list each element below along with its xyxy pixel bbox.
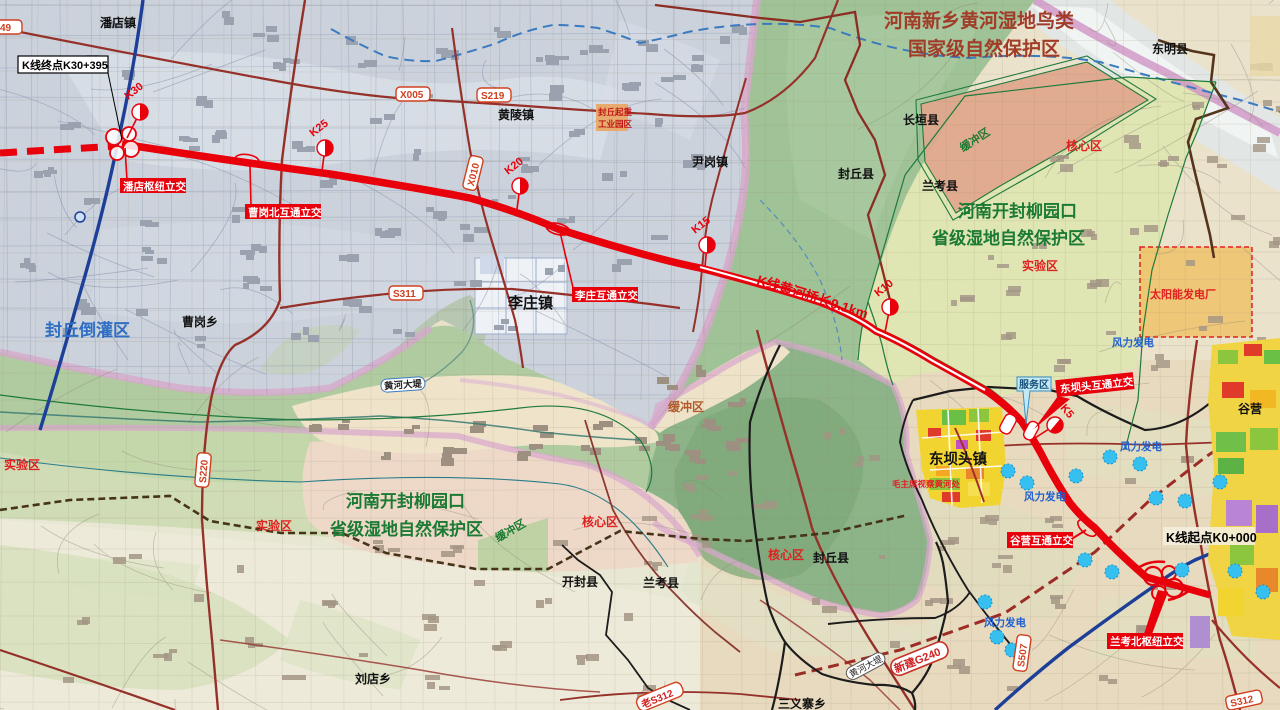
svg-text:实验区: 实验区 [1022, 258, 1058, 273]
svg-text:东坝头镇: 东坝头镇 [929, 450, 987, 468]
svg-text:风力发电: 风力发电 [1120, 440, 1162, 453]
svg-text:潘店镇: 潘店镇 [100, 15, 136, 30]
svg-text:曹岗北互通立交: 曹岗北互通立交 [248, 206, 322, 219]
svg-text:东明县: 东明县 [1152, 41, 1188, 56]
svg-text:尹岗镇: 尹岗镇 [692, 154, 728, 169]
svg-text:S220: S220 [198, 459, 211, 484]
svg-text:省级湿地自然保护区: 省级湿地自然保护区 [931, 228, 1085, 248]
svg-text:封丘倒灌区: 封丘倒灌区 [45, 320, 130, 340]
svg-text:兰考县: 兰考县 [922, 178, 958, 193]
svg-text:K线起点K0+000: K线起点K0+000 [1166, 530, 1257, 545]
svg-text:刘店乡: 刘店乡 [355, 671, 391, 686]
svg-text:缓冲区: 缓冲区 [668, 399, 704, 414]
svg-text:工业园区: 工业园区 [598, 119, 633, 129]
svg-text:封丘县: 封丘县 [838, 166, 874, 181]
svg-text:兰考县: 兰考县 [643, 575, 679, 590]
svg-text:兰考北枢纽立交: 兰考北枢纽立交 [1110, 635, 1184, 648]
svg-text:风力发电: 风力发电 [984, 616, 1026, 629]
svg-text:S311: S311 [393, 289, 416, 300]
svg-text:太阳能发电厂: 太阳能发电厂 [1149, 287, 1216, 301]
svg-text:李庄互通立交: 李庄互通立交 [574, 289, 638, 302]
svg-text:省级湿地自然保护区: 省级湿地自然保护区 [329, 519, 483, 539]
svg-text:49: 49 [0, 23, 12, 34]
svg-text:X005: X005 [400, 90, 424, 101]
svg-text:谷营互通立交: 谷营互通立交 [1010, 534, 1073, 547]
svg-text:S219: S219 [481, 91, 505, 102]
svg-text:潘店枢纽立交: 潘店枢纽立交 [123, 180, 186, 193]
svg-text:毛主席视察黄河处: 毛主席视察黄河处 [892, 479, 961, 489]
svg-text:黄陵镇: 黄陵镇 [498, 107, 534, 122]
svg-text:河南开封柳园口: 河南开封柳园口 [958, 201, 1077, 221]
svg-text:实验区: 实验区 [4, 457, 40, 472]
svg-text:核心区: 核心区 [768, 547, 804, 562]
svg-text:李庄镇: 李庄镇 [507, 294, 553, 312]
svg-text:K线终点K30+395: K线终点K30+395 [22, 58, 108, 72]
svg-text:长垣县: 长垣县 [903, 112, 939, 127]
svg-text:风力发电: 风力发电 [1112, 336, 1154, 349]
svg-text:封丘起重: 封丘起重 [598, 107, 633, 117]
svg-text:三义寨乡: 三义寨乡 [778, 696, 826, 710]
svg-text:服务区: 服务区 [1019, 378, 1049, 391]
svg-text:核心区: 核心区 [582, 514, 618, 529]
svg-text:封丘县: 封丘县 [813, 550, 849, 565]
svg-text:谷营: 谷营 [1238, 401, 1262, 416]
svg-text:河南开封柳园口: 河南开封柳园口 [346, 491, 465, 511]
svg-text:实验区: 实验区 [256, 518, 292, 533]
svg-text:风力发电: 风力发电 [1024, 490, 1066, 503]
svg-text:曹岗乡: 曹岗乡 [182, 314, 218, 329]
svg-text:国家级自然保护区: 国家级自然保护区 [908, 37, 1060, 60]
svg-text:开封县: 开封县 [562, 574, 598, 589]
svg-text:河南新乡黄河湿地鸟类: 河南新乡黄河湿地鸟类 [884, 9, 1074, 32]
svg-text:核心区: 核心区 [1066, 138, 1102, 153]
